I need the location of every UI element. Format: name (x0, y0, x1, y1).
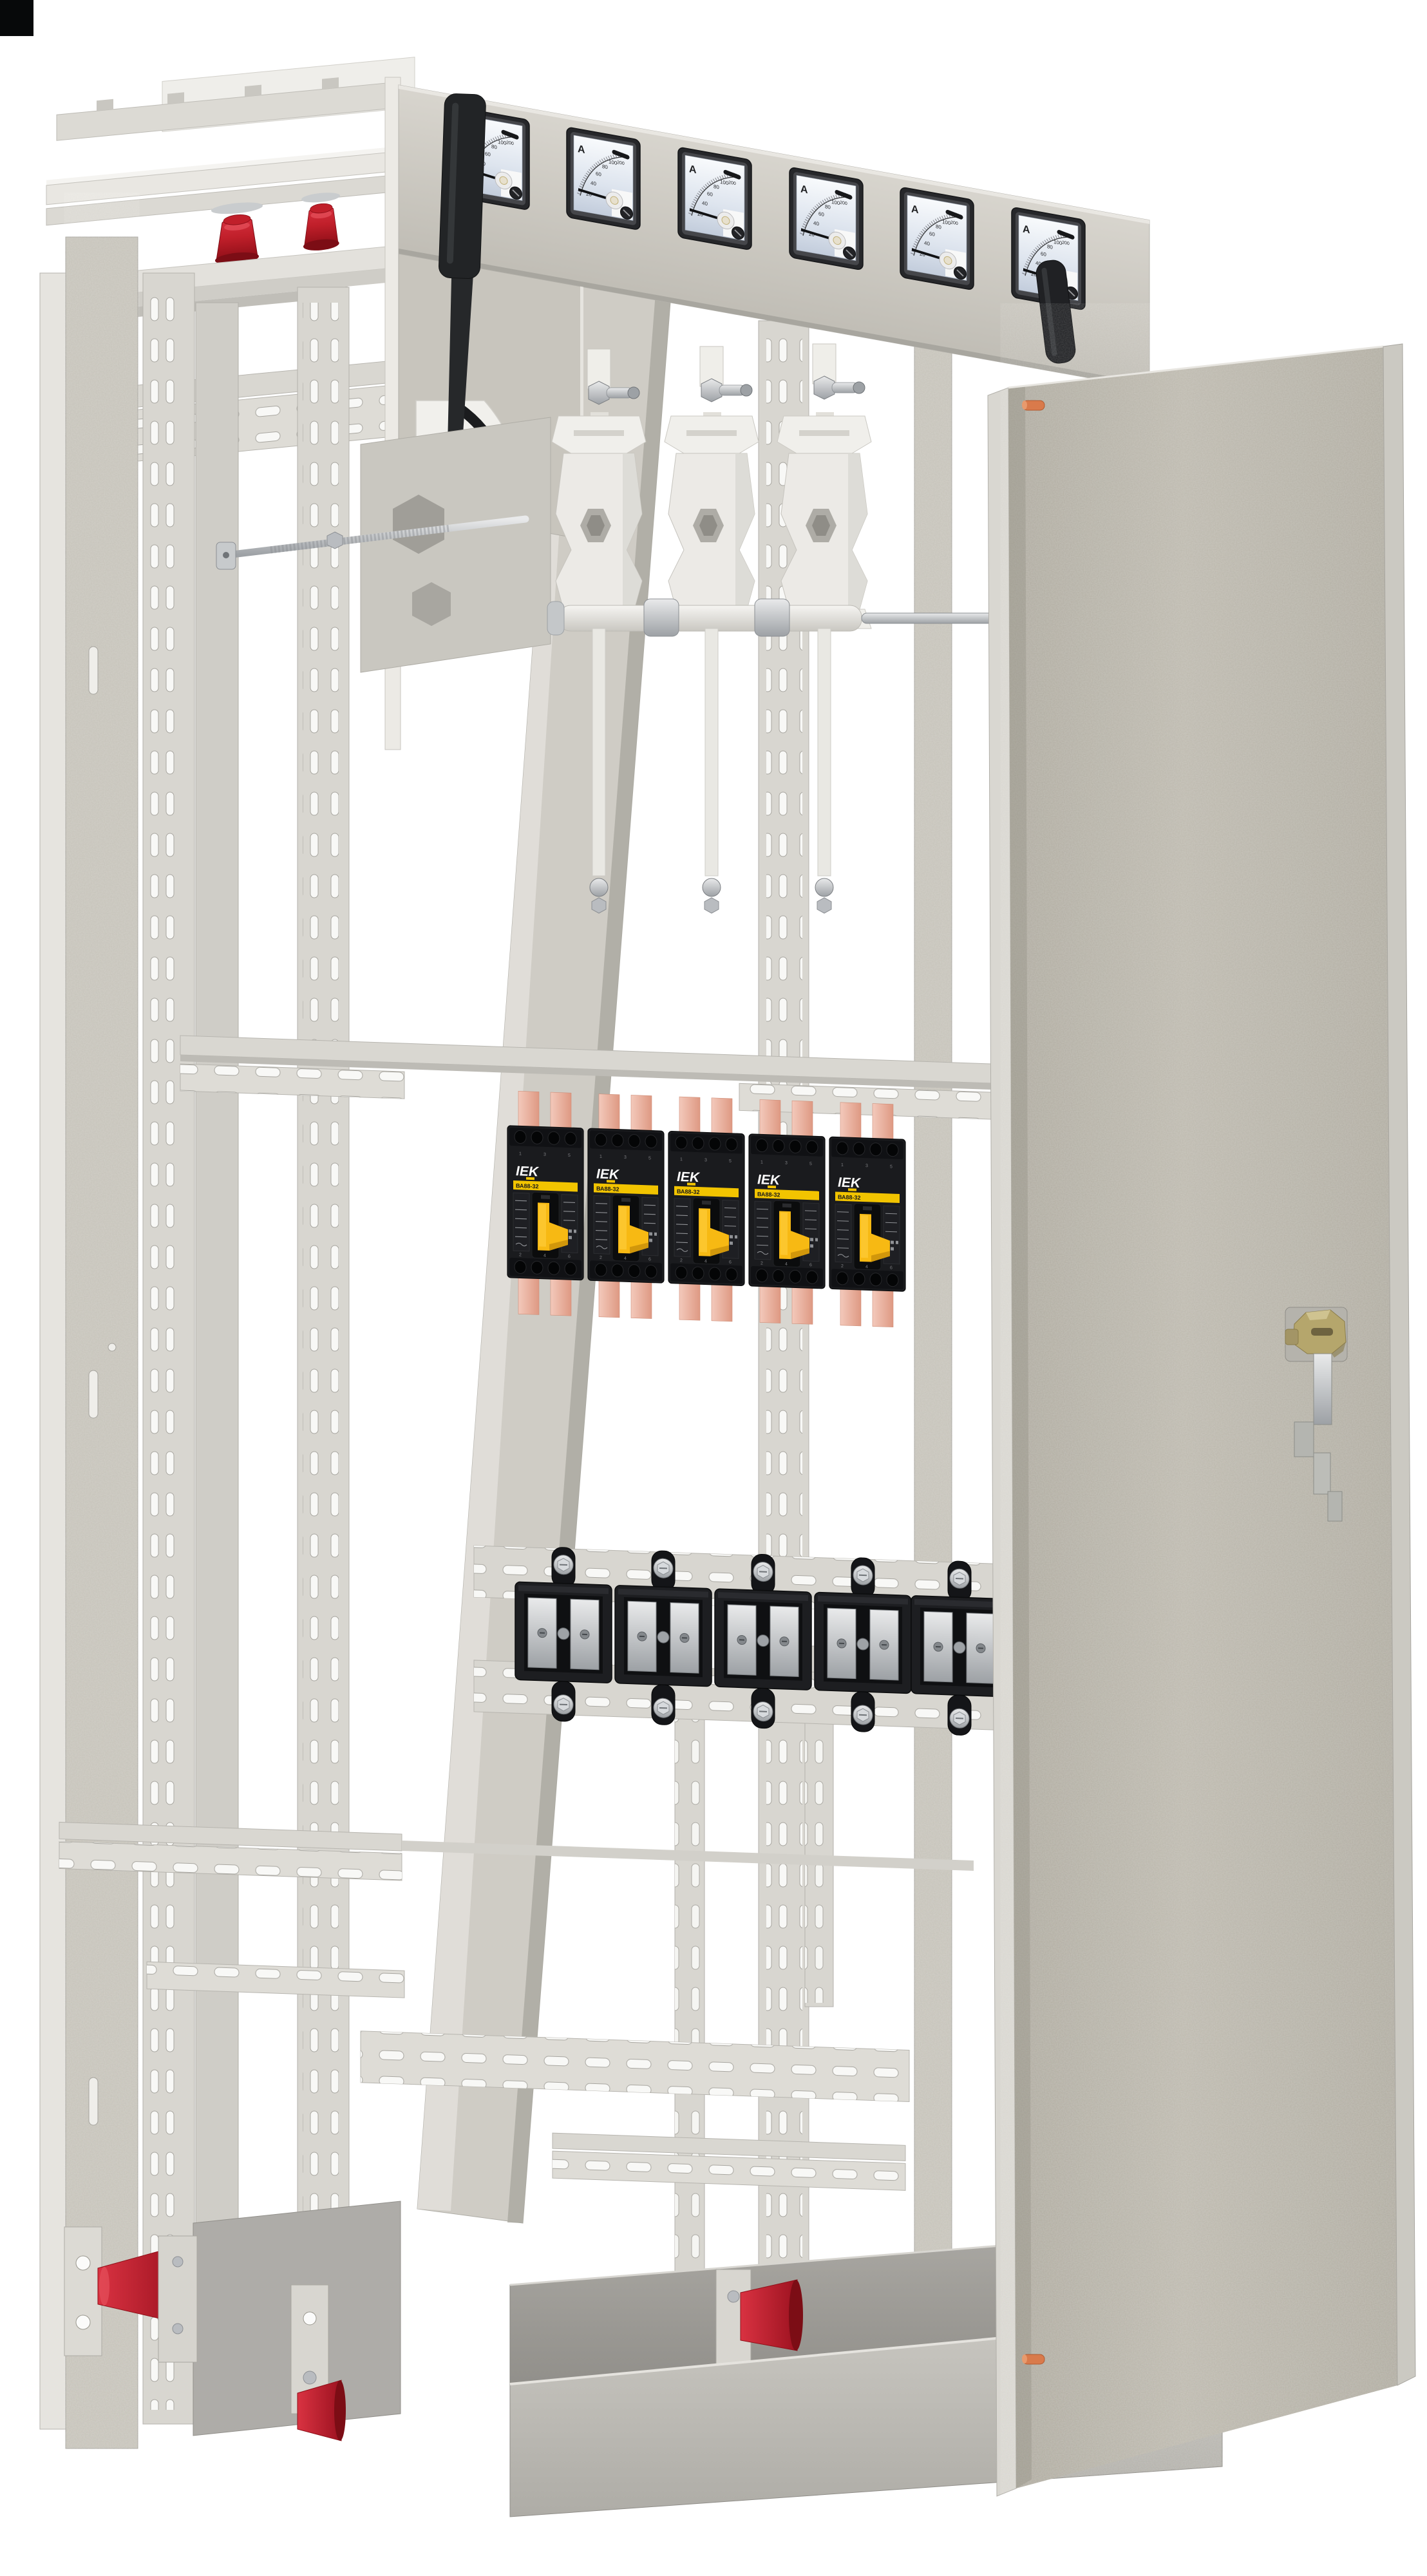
frame-upright (196, 303, 238, 2389)
standoff-insulator (741, 2280, 797, 2351)
drive-shaft (559, 605, 862, 631)
insulator-bracket (64, 2227, 102, 2356)
pole-strap (818, 629, 831, 876)
door (988, 259, 1415, 2496)
frame-profile (40, 273, 66, 2429)
extension-rod (862, 613, 1003, 623)
pole-strap (705, 629, 718, 876)
electrical-cabinet-render: A 20 40 60 80 100 200 (0, 0, 1427, 2576)
insulator-bracket (158, 2236, 197, 2362)
left-frame (40, 237, 349, 2448)
corner-marker (0, 0, 33, 36)
pole-strap (592, 629, 605, 876)
door-lock (1285, 1307, 1347, 1361)
shaft-collar (644, 599, 679, 636)
corner-post (914, 273, 952, 2415)
shaft-collar (755, 599, 789, 636)
side-panel (66, 237, 138, 2448)
door-inner-panel (1008, 346, 1397, 2488)
lock-key-tab (1285, 1329, 1298, 1345)
switch-bracket-plate (361, 417, 551, 672)
